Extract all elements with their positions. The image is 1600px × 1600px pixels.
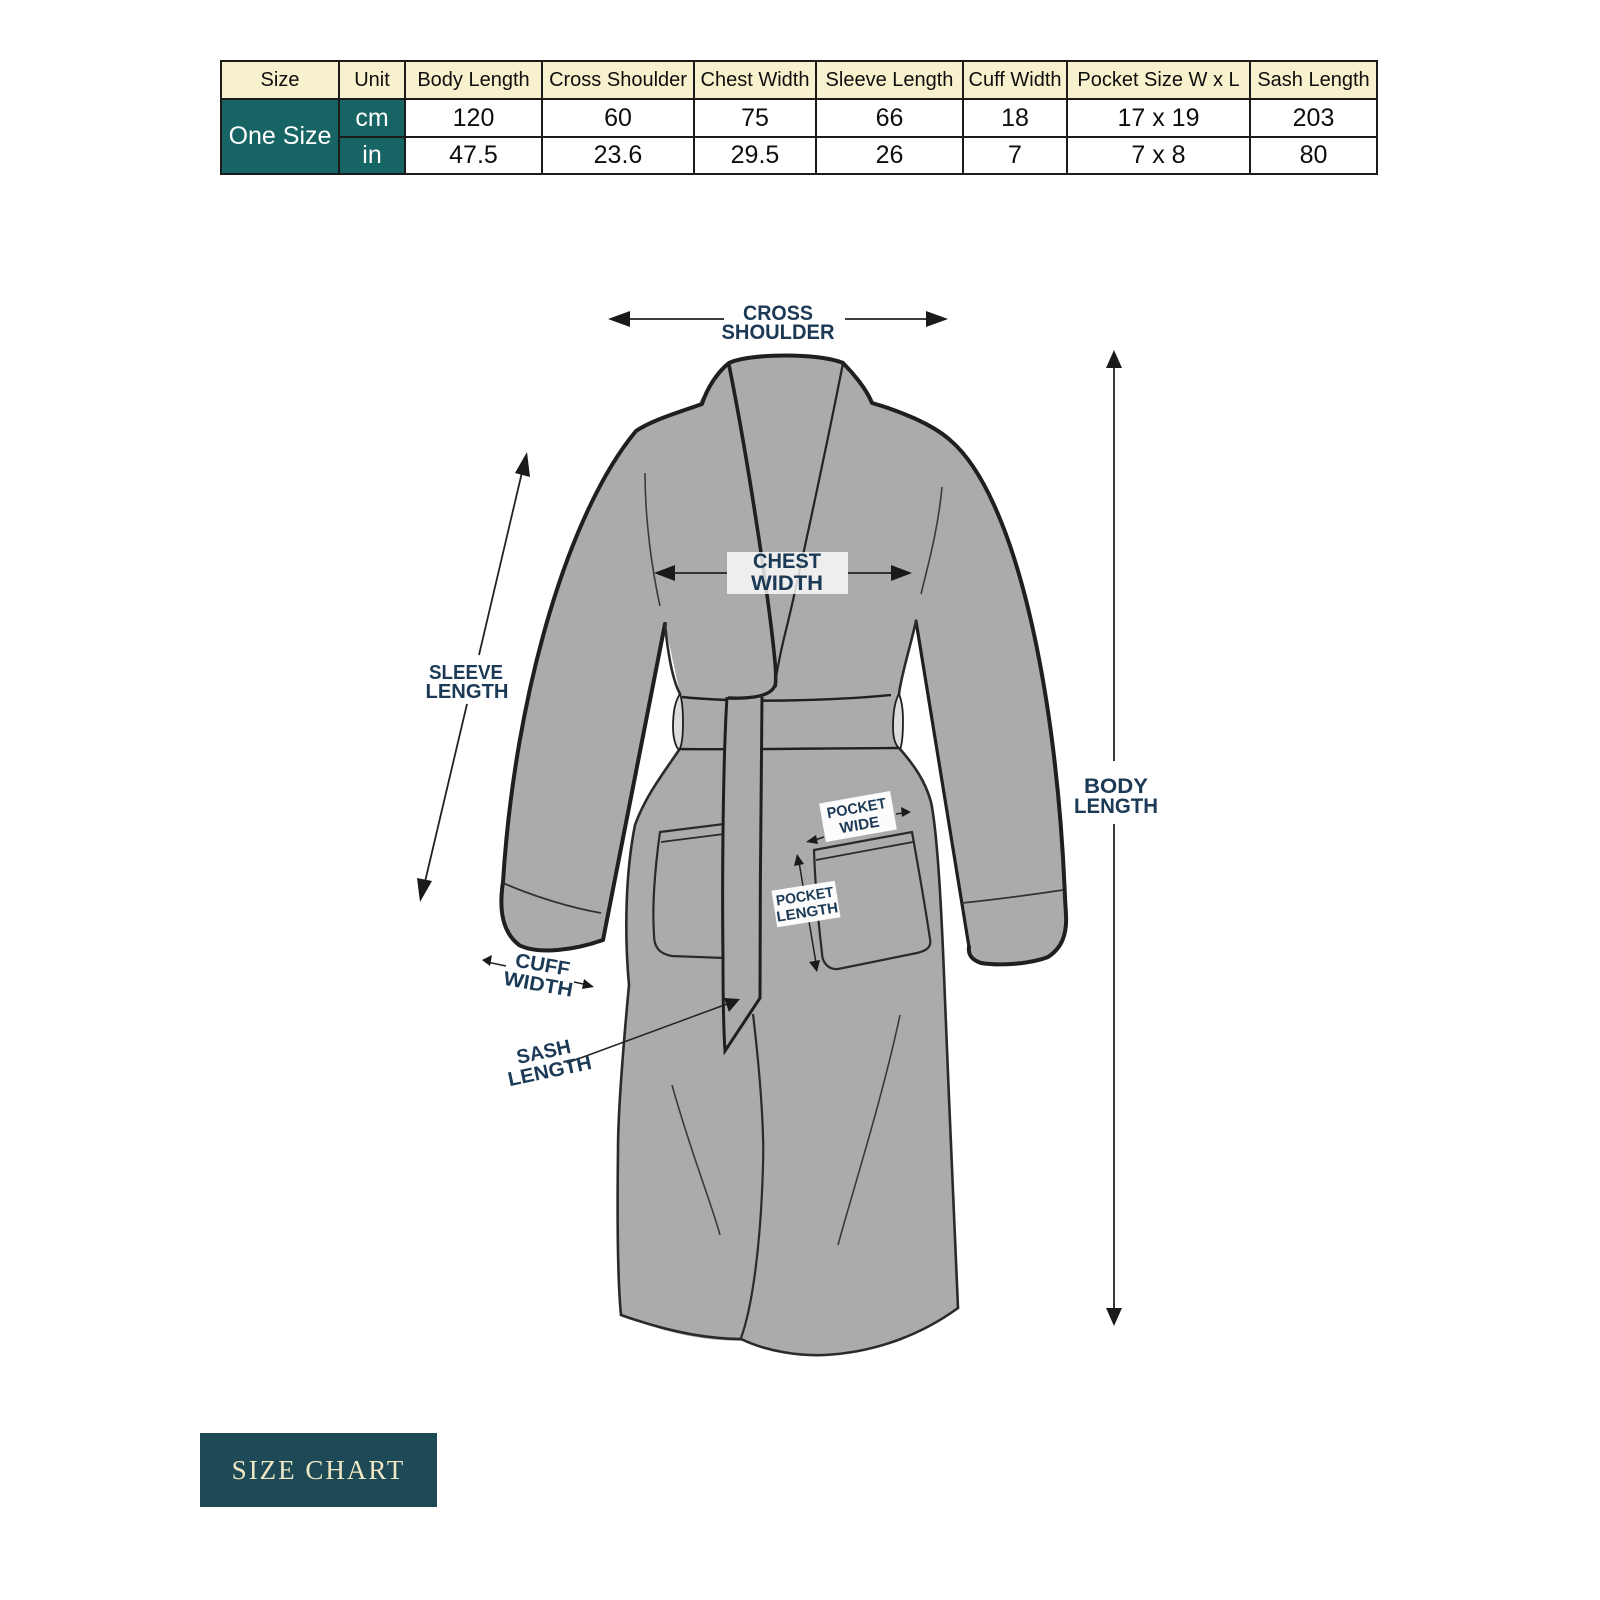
svg-text:LENGTH: LENGTH: [1074, 795, 1158, 818]
svg-text:CHEST: CHEST: [753, 550, 821, 573]
svg-text:WIDTH: WIDTH: [751, 572, 823, 595]
svg-text:SHOULDER: SHOULDER: [722, 321, 835, 344]
svg-text:LENGTH: LENGTH: [426, 681, 509, 703]
